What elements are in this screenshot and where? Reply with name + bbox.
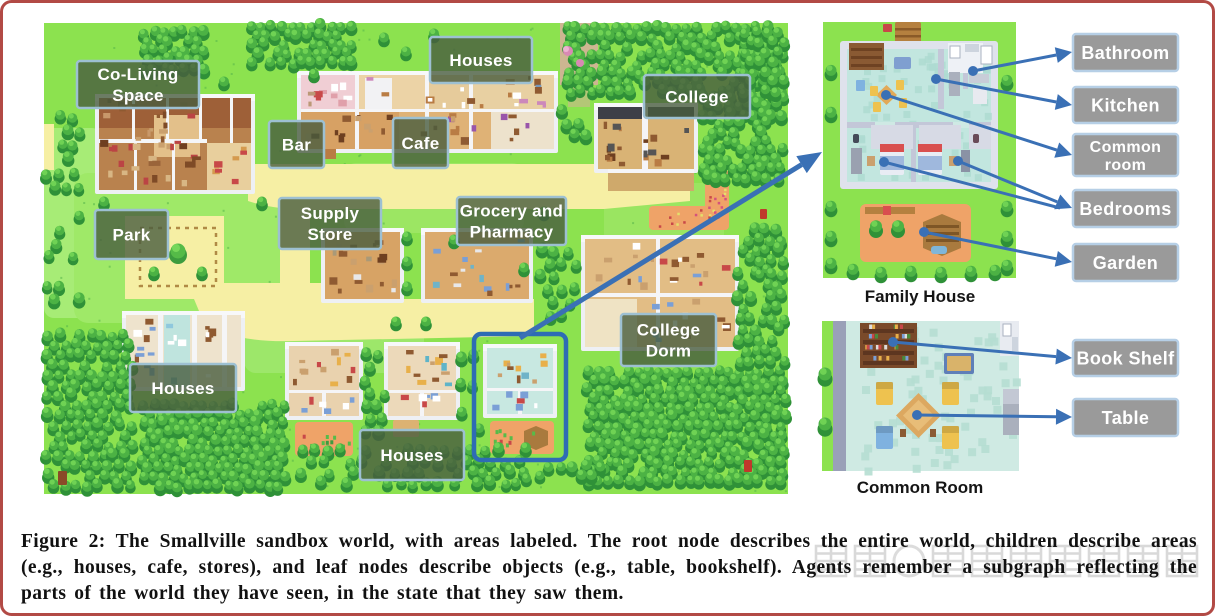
svg-text:Cafe: Cafe — [401, 134, 439, 153]
svg-text:College: College — [637, 321, 701, 340]
svg-text:Book Shelf: Book Shelf — [1076, 349, 1175, 369]
svg-text:Houses: Houses — [449, 51, 512, 70]
svg-text:room: room — [1105, 157, 1147, 174]
svg-text:College: College — [665, 88, 729, 107]
svg-text:Bedrooms: Bedrooms — [1079, 199, 1171, 219]
svg-text:Dorm: Dorm — [646, 342, 692, 361]
svg-text:Houses: Houses — [380, 446, 443, 465]
svg-text:Store: Store — [308, 225, 353, 244]
svg-text:Pharmacy: Pharmacy — [470, 223, 554, 242]
svg-text:Supply: Supply — [301, 204, 360, 223]
svg-text:Co-Living: Co-Living — [97, 65, 178, 84]
svg-text:Common Room: Common Room — [857, 478, 984, 497]
svg-text:Kitchen: Kitchen — [1091, 96, 1160, 116]
svg-text:Common: Common — [1090, 139, 1162, 156]
svg-text:Grocery and: Grocery and — [460, 202, 563, 221]
svg-text:Table: Table — [1102, 408, 1150, 428]
svg-text:Houses: Houses — [151, 379, 214, 398]
svg-text:Family House: Family House — [865, 287, 976, 306]
svg-text:Bar: Bar — [282, 136, 311, 155]
svg-text:Park: Park — [112, 226, 150, 245]
svg-text:Bathroom: Bathroom — [1081, 43, 1169, 63]
svg-text:Space: Space — [112, 86, 164, 105]
svg-text:Garden: Garden — [1093, 253, 1158, 273]
